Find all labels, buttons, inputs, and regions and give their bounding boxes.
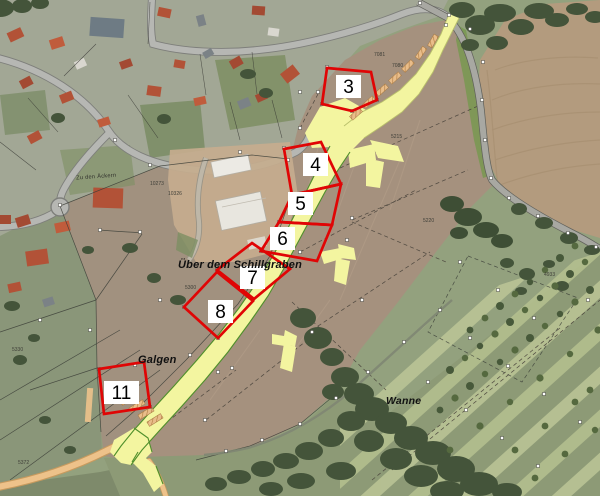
cul-de-sac	[51, 198, 69, 216]
parcel-number: 5300	[185, 285, 196, 291]
field-name-schillgraben: Über dem Schillgraben	[178, 258, 302, 271]
field-name-wanne: Wanne	[386, 395, 421, 407]
lot-7-number: 7	[247, 268, 258, 289]
lot-5-number: 5	[295, 194, 306, 215]
map-canvas: 7081 7080 5215 5220 4933 5300 5330 5372 …	[0, 0, 600, 496]
parcel-number: 5220	[423, 218, 434, 224]
lot-11-number: 11	[112, 383, 132, 404]
lot-4-number: 4	[310, 155, 321, 176]
lot-6-number: 6	[277, 229, 288, 250]
lot-3-number: 3	[343, 77, 354, 98]
lot-8-number: 8	[215, 302, 226, 323]
parcel-number: 10273	[150, 181, 164, 187]
parcel-number: 4933	[544, 272, 555, 278]
parcel-number: 5215	[391, 134, 402, 140]
parcel-number: 5372	[18, 460, 29, 466]
parcel-number: 7081	[374, 52, 385, 58]
aerial-plan-map: 7081 7080 5215 5220 4933 5300 5330 5372 …	[0, 0, 600, 496]
parcel-number: 5330	[12, 347, 23, 353]
parcel-number: 7080	[392, 63, 403, 69]
parcel-number: 10326	[168, 191, 182, 197]
field-name-galgen: Galgen	[138, 354, 177, 366]
